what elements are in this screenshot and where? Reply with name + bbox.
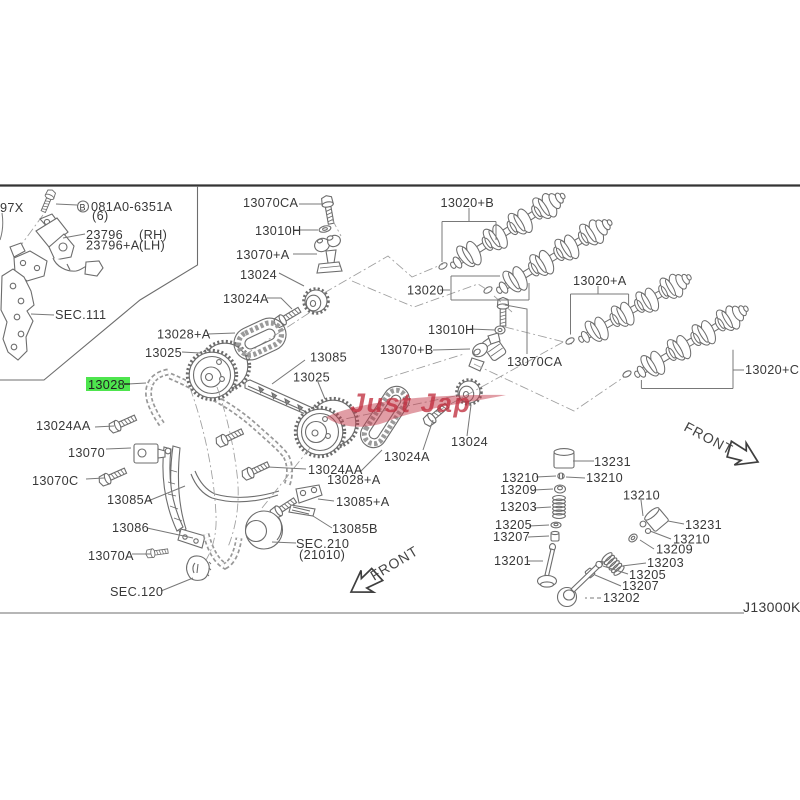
svg-text:13024: 13024 [240, 268, 277, 282]
svg-text:13024AA: 13024AA [36, 419, 91, 433]
svg-text:13086: 13086 [112, 521, 149, 535]
svg-text:13028+A: 13028+A [327, 473, 381, 487]
svg-text:13070CA: 13070CA [243, 196, 299, 210]
svg-text:13085B: 13085B [332, 522, 378, 536]
svg-text:13231: 13231 [685, 518, 722, 532]
svg-text:13020+A: 13020+A [573, 274, 627, 288]
svg-text:13209: 13209 [656, 543, 693, 557]
svg-text:13010H: 13010H [428, 323, 475, 337]
svg-text:13024: 13024 [451, 435, 488, 449]
svg-text:13020+C: 13020+C [745, 363, 799, 377]
svg-text:13010H: 13010H [255, 224, 302, 238]
svg-text:13070C: 13070C [32, 474, 79, 488]
svg-text:13201: 13201 [494, 554, 531, 568]
svg-text:13207: 13207 [493, 530, 530, 544]
svg-text:13085: 13085 [310, 351, 347, 365]
svg-text:B: B [80, 203, 86, 213]
svg-text:13203: 13203 [500, 500, 537, 514]
svg-text:FRONT: FRONT [682, 419, 737, 458]
svg-text:13070: 13070 [68, 446, 105, 460]
svg-text:(6): (6) [92, 209, 109, 223]
svg-text:SEC.120: SEC.120 [110, 585, 163, 599]
svg-text:13210: 13210 [586, 471, 623, 485]
svg-text:13020: 13020 [407, 284, 444, 298]
svg-text:13070+B: 13070+B [380, 343, 434, 357]
svg-text:13209: 13209 [500, 483, 537, 497]
svg-text:13020+B: 13020+B [441, 196, 495, 210]
svg-text:13025: 13025 [293, 371, 330, 385]
svg-text:13202: 13202 [603, 591, 640, 605]
svg-text:13028+A: 13028+A [157, 328, 211, 342]
svg-text:13085+A: 13085+A [336, 495, 390, 509]
svg-text:(LH): (LH) [139, 239, 165, 253]
svg-text:(21010): (21010) [299, 548, 345, 562]
svg-text:13024A: 13024A [223, 292, 269, 306]
svg-text:13070A: 13070A [88, 549, 134, 563]
svg-text:13070+A: 13070+A [236, 248, 290, 262]
svg-text:23796+A: 23796+A [86, 239, 140, 253]
svg-text:J13000K: J13000K [743, 599, 800, 615]
svg-text:Just Jap: Just Jap [350, 388, 472, 418]
svg-text:13085A: 13085A [107, 493, 153, 507]
svg-text:97X: 97X [0, 201, 24, 215]
svg-text:13024A: 13024A [384, 450, 430, 464]
svg-text:13231: 13231 [594, 455, 631, 469]
svg-text:13210: 13210 [623, 489, 660, 503]
svg-text:13028: 13028 [88, 378, 125, 392]
svg-text:FRONT: FRONT [367, 542, 421, 583]
svg-text:13070CA: 13070CA [507, 355, 563, 369]
svg-text:SEC.111: SEC.111 [55, 308, 106, 322]
svg-text:13025: 13025 [145, 346, 182, 360]
